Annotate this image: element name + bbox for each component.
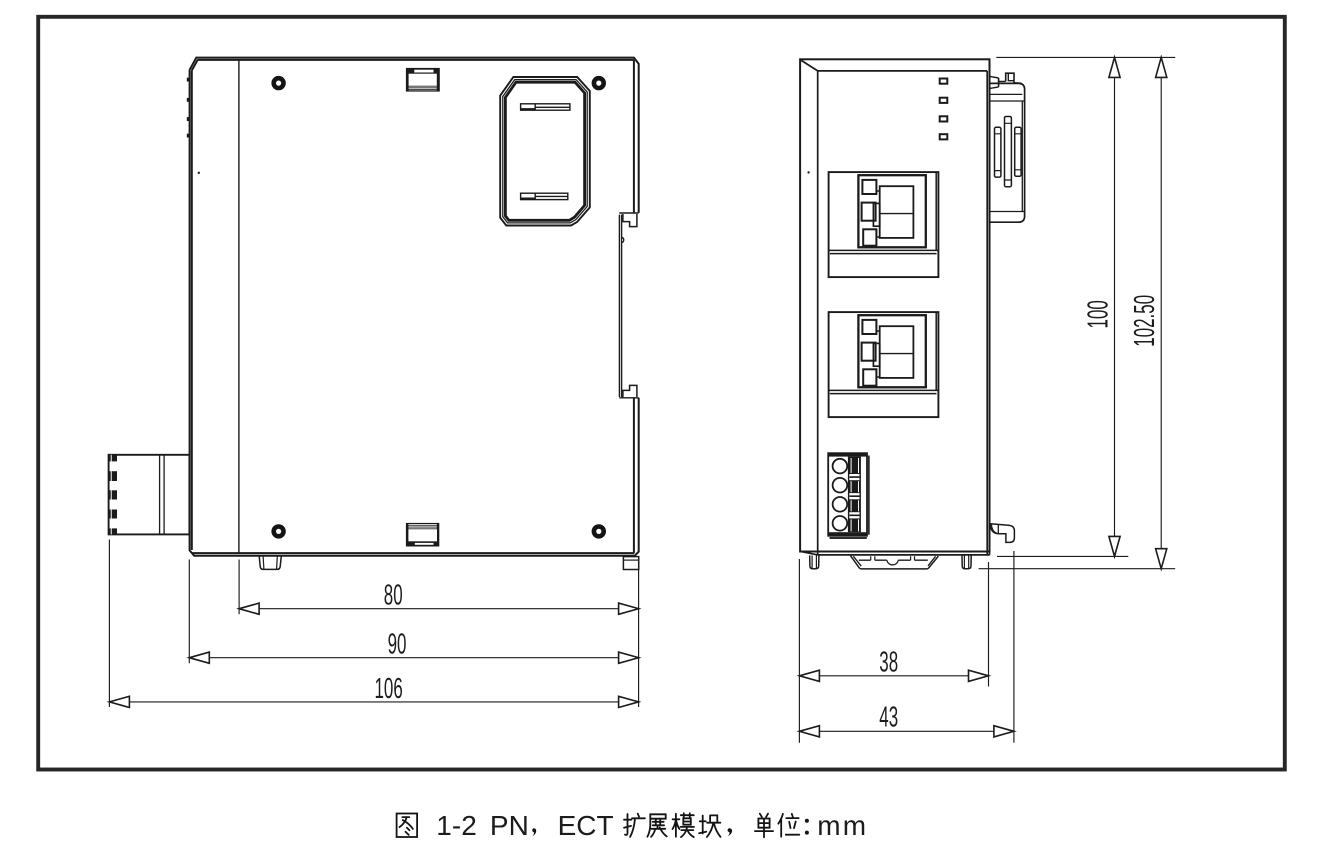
svg-text:1-2: 1-2 (436, 810, 476, 841)
svg-text:mm: mm (817, 810, 868, 841)
svg-text:102.50: 102.50 (1128, 295, 1161, 347)
svg-text:106: 106 (374, 672, 402, 705)
svg-text:90: 90 (388, 628, 407, 661)
svg-text:100: 100 (1082, 300, 1115, 328)
svg-text:43: 43 (879, 701, 898, 734)
svg-text:ECT: ECT (558, 810, 614, 841)
svg-text:PN: PN (490, 810, 529, 841)
svg-text:80: 80 (384, 579, 403, 612)
svg-text:38: 38 (879, 646, 898, 679)
